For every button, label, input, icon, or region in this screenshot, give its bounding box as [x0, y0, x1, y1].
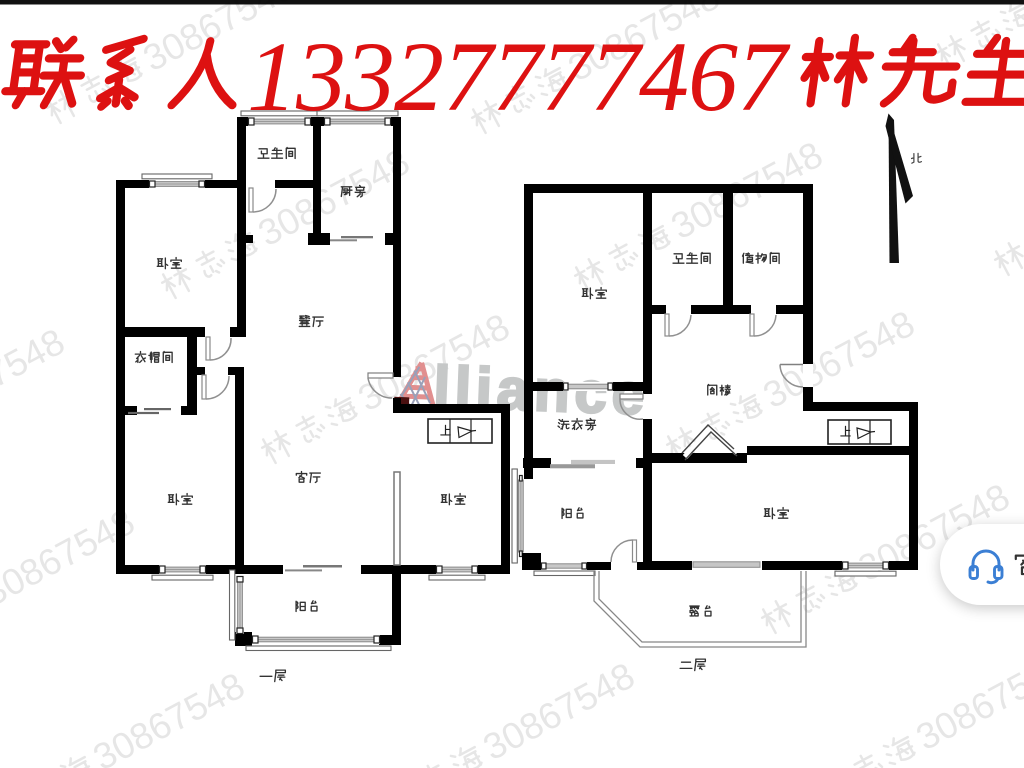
svg-text:30867548: 30867548 — [477, 655, 642, 768]
svg-text:30867548: 30867548 — [757, 303, 922, 416]
svg-text:30867548: 30867548 — [0, 321, 71, 434]
svg-text:30867548: 30867548 — [910, 645, 1024, 758]
svg-text:13327777467: 13327777467 — [247, 21, 791, 132]
svg-text:30867548: 30867548 — [87, 665, 252, 768]
